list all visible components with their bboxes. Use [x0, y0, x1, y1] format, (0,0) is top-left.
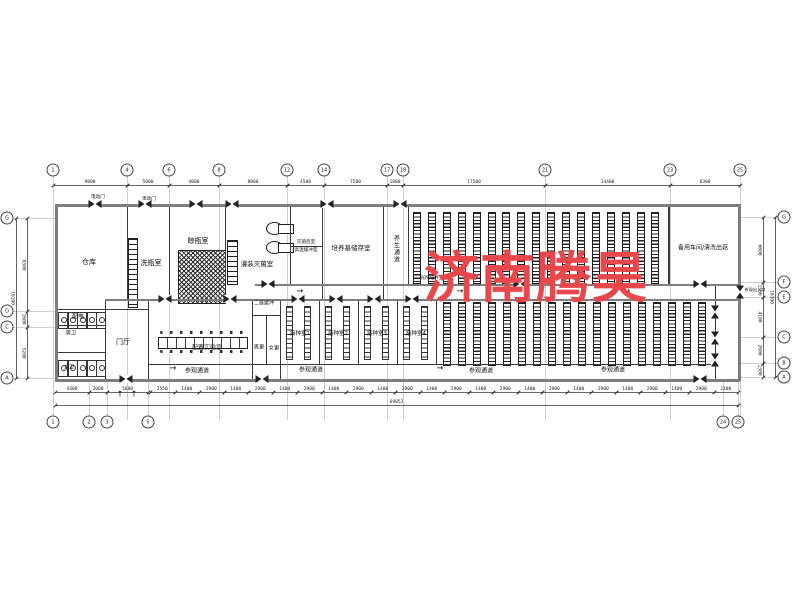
dim-bottom-small	[444, 392, 469, 393]
dim-bottom-small-value: 2900	[696, 387, 707, 392]
door-icon	[711, 354, 719, 367]
part-inoc-1	[319, 299, 320, 364]
cultivation-rack	[608, 302, 616, 366]
grid-bubble-left: D	[1, 305, 14, 318]
wall-left	[55, 204, 58, 381]
door-icon	[89, 200, 102, 208]
grid-line-vertical	[738, 381, 739, 416]
dim-bottom-small	[273, 392, 298, 393]
cultivation-rack	[578, 302, 586, 366]
room-label-womens-toilet: 女卫	[64, 364, 74, 371]
dim-top-value: 8300	[699, 180, 710, 185]
dim-top	[545, 185, 670, 186]
dim-bottom-small-value: 2900	[206, 387, 217, 392]
wall-toilet-divider	[55, 352, 105, 353]
dim-bottom-small-value: 1400	[622, 387, 633, 392]
grid-line-vertical	[670, 176, 671, 420]
grid-bubble-top: 14	[318, 164, 331, 177]
room-label-post-sterilization: 灭菌后室	[297, 239, 315, 245]
part-changing-mid	[266, 315, 267, 364]
part-warehouse	[127, 204, 128, 300]
door-icon	[330, 295, 343, 303]
grid-bubble-bottom: 5	[142, 416, 155, 429]
dim-bottom-small-value: 2900	[549, 387, 560, 392]
dim-right-value: 6600	[757, 244, 762, 255]
dim-bottom-small	[616, 392, 641, 393]
dim-bottom-small-value: 2900	[304, 387, 315, 392]
dim-top	[670, 185, 740, 186]
bottle-conveyor	[128, 238, 138, 308]
flow-arrow-icon: →	[170, 364, 177, 373]
dim-top-value: 9800	[84, 180, 95, 185]
part-washing	[169, 204, 170, 300]
dim-left-total-value: 16100	[10, 291, 15, 305]
dim-bottom-small-value: 1400	[426, 387, 437, 392]
dim-bottom-small-value: 2900	[647, 387, 658, 392]
label-visit-corridor-3: 参观通道	[469, 366, 493, 375]
wall-powerroom-top	[55, 309, 148, 310]
dim-right-value: 2600	[757, 344, 762, 355]
dim-bottom-small	[469, 392, 494, 393]
toilet-stall-icon	[58, 312, 68, 329]
door-icon	[139, 200, 152, 208]
dim-top	[287, 185, 324, 186]
part-toilet-right	[105, 299, 106, 380]
dim-bottom-small-value: 2900	[451, 387, 462, 392]
dim-bottom-small	[518, 392, 543, 393]
room-label-secondary-buffer: 二级缓冲	[254, 300, 274, 307]
grid-line-horizontal	[13, 327, 55, 328]
dim-bottom-small	[567, 392, 592, 393]
dim-bottom-small	[665, 392, 690, 393]
grid-bubble-top: 12	[281, 164, 294, 177]
dim-right-value: 1500	[757, 364, 762, 375]
dim-bottom-small	[371, 392, 396, 393]
dim-top	[169, 185, 219, 186]
grid-bubble-top: 1	[47, 164, 60, 177]
dim-top-value: 14400	[601, 180, 615, 185]
dim-right-total	[775, 217, 776, 377]
dim-bottom-small-value: 2900	[255, 387, 266, 392]
cultivation-rack	[638, 302, 646, 366]
grid-bubble-top: 21	[539, 164, 552, 177]
part-inoc-3	[397, 299, 398, 364]
dim-bottom-small	[493, 392, 518, 393]
floor-plan-drawing: 仓库 洗瓶室 晾瓶室 灌装灭菌室 灭菌后室 高温缓冲室 培养基储存室 养生通道 …	[0, 0, 800, 600]
grid-bubble-top: 6	[163, 164, 176, 177]
grid-line-horizontal	[13, 311, 55, 312]
toilet-stall-icon	[87, 360, 97, 377]
grid-line-vertical	[403, 176, 404, 420]
grid-line-horizontal	[740, 282, 778, 283]
dim-bottom-small	[591, 392, 616, 393]
dim-bottom-small-value: 2100	[720, 387, 731, 392]
cultivation-rack	[668, 302, 676, 366]
grid-bubble-right: E	[778, 291, 791, 304]
door-icon	[406, 295, 419, 303]
dim-bottom-small	[346, 392, 371, 393]
flow-arrow-icon: ↑	[117, 390, 124, 399]
dim-bottom-small-value: 1400	[230, 387, 241, 392]
grid-line-vertical	[53, 381, 54, 416]
cultivation-rack	[548, 302, 556, 366]
dim-top-value: 1800	[389, 180, 400, 185]
dim-bottom-small	[714, 392, 739, 393]
part-lobby-right	[148, 299, 149, 380]
wall-powerroom-bottom	[55, 325, 105, 326]
lab-stools-top	[160, 331, 244, 334]
room-label-inoculation-4: 接种室4	[406, 329, 426, 337]
dim-bottom-small-value: 1400	[181, 387, 192, 392]
dim-bottom-small	[640, 392, 665, 393]
room-label-bottle-drying: 晾瓶室	[188, 236, 209, 246]
door-icon	[190, 200, 203, 208]
label-visit-corridor-4: 参观通道	[601, 365, 625, 374]
grid-line-vertical	[387, 176, 388, 420]
wall-visit-corridor-top	[148, 364, 715, 365]
dim-bottom-small-value: 1400	[328, 387, 339, 392]
dim-top-value: 8000	[247, 180, 258, 185]
part-changing-right	[280, 299, 281, 380]
door-icon	[256, 375, 269, 383]
dim-right	[763, 337, 764, 363]
toilet-stall-icon	[87, 312, 97, 329]
cultivation-rack	[488, 302, 496, 366]
room-label-medium-storage: 培养基储存室	[332, 242, 371, 252]
room-label-inoculation-1: 接种室1	[290, 329, 310, 337]
dim-bottom-left-value: 2000	[92, 387, 103, 392]
dim-right-value: 4100	[757, 311, 762, 322]
grid-bubble-top: 17	[381, 164, 394, 177]
grid-bubble-right: F	[778, 276, 791, 289]
dim-top-value: 7500	[350, 180, 361, 185]
door-icon	[368, 295, 381, 303]
dim-right-total-value: 16300	[769, 290, 774, 304]
door-icon	[394, 200, 407, 208]
grid-bubble-left: C	[1, 321, 14, 334]
grid-line-horizontal	[740, 377, 778, 378]
cultivation-rack	[533, 302, 541, 366]
dim-bottom-small-value: 2550	[157, 387, 168, 392]
cultivation-rack	[443, 302, 451, 366]
grid-bubble-top: 18	[397, 164, 410, 177]
toilet-stall-icon	[77, 360, 87, 377]
dim-left-value: 1600	[21, 313, 26, 324]
dim-bottom-total-value: 69852	[390, 400, 404, 405]
dim-top	[53, 185, 127, 186]
part-inoc-2	[358, 299, 359, 364]
room-label-warehouse: 仓库	[82, 257, 96, 267]
dim-bottom-small-value: 1400	[377, 387, 388, 392]
dim-left-total	[16, 218, 17, 378]
dim-left	[27, 327, 28, 378]
dim-bottom-small	[395, 392, 420, 393]
grid-line-vertical	[89, 381, 90, 416]
grid-line-horizontal	[740, 217, 778, 218]
door-icon	[321, 200, 334, 208]
room-label-power: 配电	[72, 312, 84, 321]
grid-bubble-top: 25	[734, 164, 747, 177]
door-icon	[262, 280, 275, 288]
dim-bottom-small-value: 2900	[598, 387, 609, 392]
dim-right	[763, 297, 764, 337]
grid-line-vertical	[287, 176, 288, 420]
dim-top-value: 17500	[467, 180, 481, 185]
dim-left-value: 9300	[21, 259, 26, 270]
dim-top-value: 4500	[300, 180, 311, 185]
dim-bottom-small	[175, 392, 200, 393]
door-icon	[694, 280, 707, 288]
part-changing-top	[252, 315, 280, 316]
autoclave-body-icon	[278, 224, 294, 234]
grid-bubble-left: G	[1, 212, 14, 225]
room-label-inoculation-2: 接种室2	[328, 329, 348, 337]
dim-left	[27, 218, 28, 311]
grid-bubble-right: G	[778, 211, 791, 224]
dim-top-value: 5000	[142, 180, 153, 185]
cultivation-rack	[593, 302, 601, 366]
door-icon	[711, 306, 719, 319]
dim-bottom-small	[199, 392, 224, 393]
cultivation-rack	[518, 302, 526, 366]
grid-bubble-right: C	[778, 331, 791, 344]
dim-bottom-small-value: 1400	[573, 387, 584, 392]
grid-bubble-left: A	[1, 372, 14, 385]
cultivation-rack	[623, 302, 631, 366]
grid-bubble-bottom: 1	[47, 416, 60, 429]
cultivation-rack	[563, 302, 571, 366]
cultivation-rack	[473, 302, 481, 366]
door-icon	[226, 200, 239, 208]
cultivation-rack	[503, 302, 511, 366]
grid-bubble-right: B	[778, 357, 791, 370]
door-icon	[694, 375, 707, 383]
door-icon	[120, 375, 133, 383]
dim-bottom-small	[297, 392, 322, 393]
dim-top-value: 4000	[188, 180, 199, 185]
dim-bottom-left-value: 4300	[66, 387, 77, 392]
part-spare-left	[668, 204, 670, 285]
label-visit-corridor-2: 参观通道	[299, 365, 323, 374]
dim-top	[387, 185, 403, 186]
dim-bottom-small-value: 1400	[279, 387, 290, 392]
dim-left	[27, 311, 28, 327]
part-smallrooms-left	[290, 204, 291, 284]
grid-line-vertical	[148, 381, 149, 416]
dim-bottom-small	[150, 392, 175, 393]
room-label-mens-changing: 男更	[254, 344, 264, 351]
room-label-prep-lab: 配置实验室	[192, 343, 222, 352]
room-label-mens-toilet: 男卫	[66, 330, 76, 337]
plan-layer: 仓库 洗瓶室 晾瓶室 灌装灭菌室 灭菌后室 高温缓冲室 培养基储存室 养生通道 …	[0, 0, 800, 600]
room-label-high-temp-buffer: 高温缓冲室	[295, 247, 318, 253]
door-icon	[292, 295, 305, 303]
watermark-text: 济南腾昊	[424, 248, 654, 309]
grid-bubble-bottom: 3	[101, 416, 114, 429]
grid-bubble-top: 23	[664, 164, 677, 177]
dim-bottom-total	[55, 405, 738, 406]
dim-top	[219, 185, 287, 186]
part-drying	[225, 204, 226, 300]
autoclave-body-icon	[278, 243, 294, 253]
grid-bubble-bottom: 2	[83, 416, 96, 429]
part-corridor-right	[408, 204, 409, 285]
wall-bottom	[55, 379, 740, 382]
grid-bubble-bottom: 25	[732, 416, 745, 429]
dim-bottom-small-value: 1400	[524, 387, 535, 392]
grid-line-vertical	[107, 381, 108, 416]
cultivation-rack	[653, 302, 661, 366]
cultivation-rack	[683, 302, 691, 366]
grid-bubble-bottom: 24	[717, 416, 730, 429]
room-label-cultivation-corridor: 养生通道	[392, 235, 401, 263]
room-label-inoculation-3: 接种室3	[367, 329, 387, 337]
grid-line-horizontal	[13, 378, 55, 379]
dim-bottom-left	[89, 392, 107, 393]
dim-bottom-small-value: 2900	[402, 387, 413, 392]
cultivation-rack	[698, 302, 706, 366]
cultivation-rack	[413, 212, 421, 284]
grid-line-horizontal	[13, 218, 55, 219]
flow-arrow-icon: ↑	[131, 390, 138, 399]
room-label-bottle-washing: 洗瓶室	[141, 258, 162, 268]
room-label-womens-changing: 女更	[269, 345, 279, 352]
dim-bottom-small-value: 2900	[500, 387, 511, 392]
dim-bottom-small	[224, 392, 249, 393]
dim-left-value: 5200	[21, 347, 26, 358]
dim-bottom-small-value: 1400	[475, 387, 486, 392]
dim-bottom-small	[689, 392, 714, 393]
dim-top	[127, 185, 169, 186]
dim-bottom-small	[542, 392, 567, 393]
grid-line-horizontal	[740, 337, 778, 338]
door-icon	[159, 295, 172, 303]
door-icon	[736, 286, 744, 299]
filling-conveyor	[227, 240, 238, 285]
room-label-lobby: 门厅	[116, 337, 130, 347]
dim-bottom-small-value: 2900	[353, 387, 364, 392]
dim-bottom-left	[107, 392, 148, 393]
flow-arrow-icon: →	[437, 364, 444, 373]
label-visit-corridor-1: 参观通道	[185, 366, 209, 375]
dim-bottom-small	[248, 392, 273, 393]
dim-right	[763, 217, 764, 282]
dim-bottom-small	[322, 392, 347, 393]
dim-bottom-small-value: 1400	[671, 387, 682, 392]
grid-bubble-top: 8	[213, 164, 226, 177]
dim-bottom-small	[420, 392, 445, 393]
door-icon	[224, 295, 237, 303]
drying-rack-hatch	[178, 250, 226, 304]
grid-bubble-top: 4	[121, 164, 134, 177]
room-label-spare-workshop: 备用车间/清洗出菇	[678, 243, 728, 252]
grid-line-vertical	[324, 176, 325, 420]
cultivation-rack	[458, 302, 466, 366]
dim-top	[403, 185, 545, 186]
dim-top	[324, 185, 387, 186]
part-lab-right	[252, 299, 253, 380]
room-label-filling-sterilization: 灌装灭菌室	[241, 258, 274, 268]
dim-bottom-left	[55, 392, 89, 393]
door-icon	[711, 332, 719, 345]
grid-bubble-right: A	[778, 371, 791, 384]
label-visitor-entrance: 参观出入口	[745, 287, 766, 293]
